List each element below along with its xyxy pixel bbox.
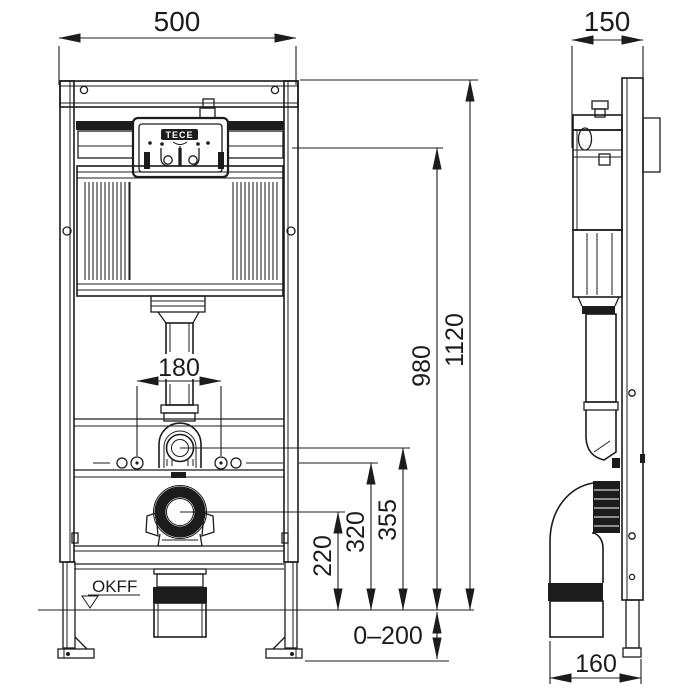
outlet-coupling-seal-side xyxy=(548,583,603,601)
dim-total-height-group: 1120 xyxy=(441,80,470,610)
cistern-outlet-seal xyxy=(582,306,615,314)
drain-wall-coupling xyxy=(593,481,620,533)
dim-outlet-offset-label: 160 xyxy=(575,650,617,678)
dim-bolt-height-label: 320 xyxy=(342,511,370,553)
wall-bracket xyxy=(643,118,660,172)
dim-depth-group: 150 xyxy=(572,6,643,148)
fixing-bolt-hole-outer-left xyxy=(117,458,127,468)
dim-drain-height-group: 220 xyxy=(309,512,338,610)
rail-screw-hole-left xyxy=(80,86,87,93)
top-rail xyxy=(60,81,298,107)
rail-screw-hole-right xyxy=(271,86,278,93)
rail-hole-upper xyxy=(629,390,635,396)
dim-floor-range-group: 0–200 xyxy=(353,612,437,659)
outlet-coupling-seal xyxy=(153,587,207,603)
side-view: 150 xyxy=(548,6,660,684)
level-triangle-icon xyxy=(82,596,98,608)
drain-outlet-pipe xyxy=(153,569,207,637)
brand-logo-text: TECE xyxy=(165,130,193,140)
dim-actuation-height-group: 980 xyxy=(408,148,437,610)
side-rail xyxy=(622,78,645,657)
front-view: 500 TECE xyxy=(38,6,478,661)
fill-valve-stub xyxy=(200,99,215,118)
dim-width-label: 500 xyxy=(154,6,201,37)
dim-total-height-label: 1120 xyxy=(441,313,469,367)
fixing-bolt-hole-outer-right xyxy=(231,458,241,468)
dim-bolt-height-group: 320 xyxy=(342,463,371,610)
floor-level-mark: OKFF xyxy=(82,577,140,608)
cistern-ribs-right xyxy=(230,182,277,280)
cistern xyxy=(77,166,283,296)
dim-width-group: 500 xyxy=(59,6,296,85)
floor-level-label: OKFF xyxy=(92,577,137,596)
drain-bend-side xyxy=(548,481,620,637)
rail-hole-middle xyxy=(629,533,635,539)
dim-bolt-spacing-label: 180 xyxy=(158,354,200,382)
dim-flush-pipe-height-label: 355 xyxy=(374,499,402,541)
side-rail-foot xyxy=(626,600,639,648)
dim-flush-pipe-height-group: 355 xyxy=(374,448,403,610)
dim-drain-height-label: 220 xyxy=(309,535,337,577)
logo-smile-mark xyxy=(173,142,187,145)
technical-drawing: 500 TECE xyxy=(0,0,700,700)
flush-pipe-side xyxy=(584,314,620,468)
drawing-canvas: 500 TECE xyxy=(0,0,700,700)
rail-hole-lower xyxy=(629,574,634,579)
cistern-side-profile xyxy=(573,101,622,314)
housing-fins xyxy=(167,459,193,466)
drain-connection xyxy=(146,472,214,546)
cistern-ribs-left xyxy=(83,182,130,280)
access-panel: TECE xyxy=(133,118,228,177)
dim-actuation-height-label: 980 xyxy=(408,345,436,387)
dim-floor-range-label: 0–200 xyxy=(353,622,423,650)
dim-depth-label: 150 xyxy=(584,6,631,37)
